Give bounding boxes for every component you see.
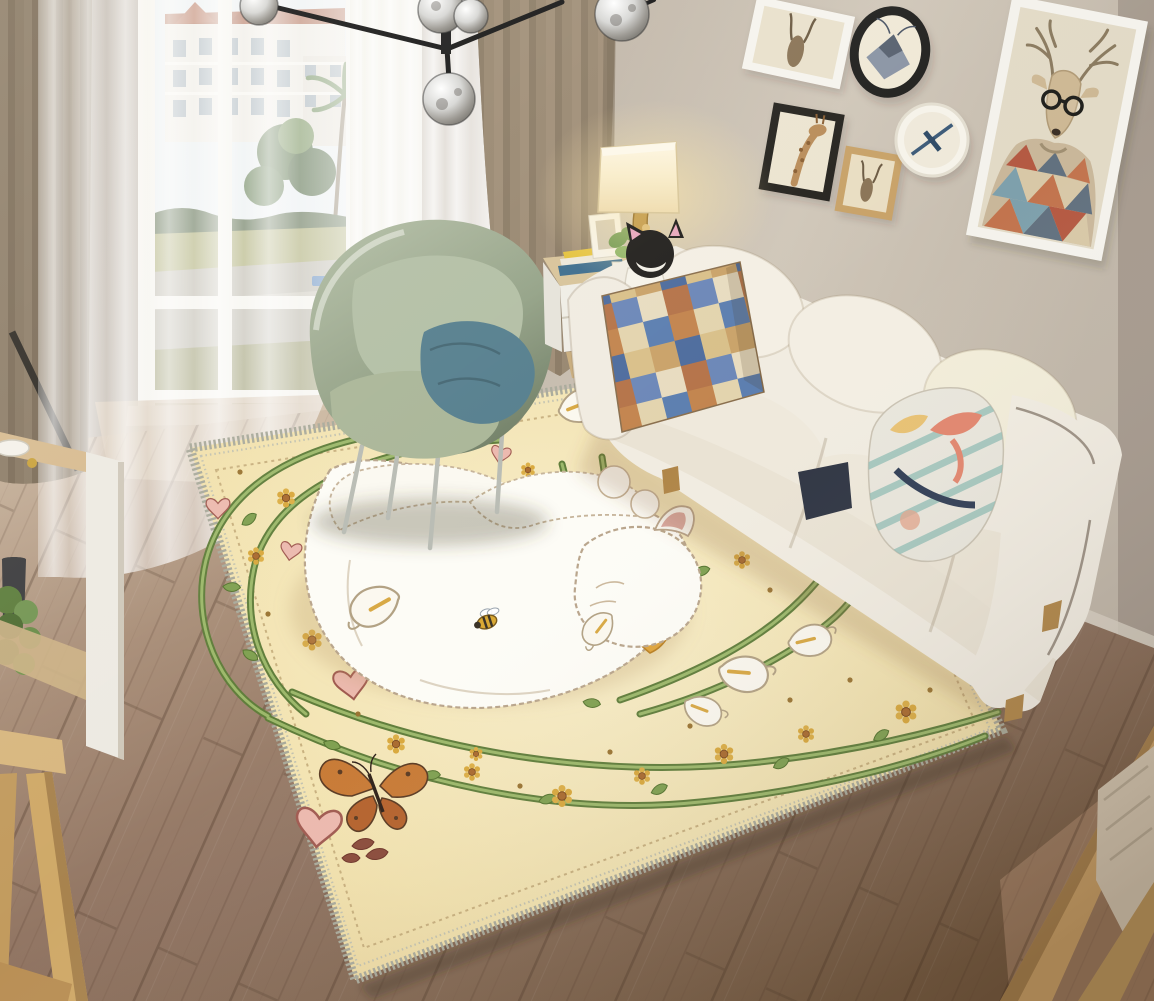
globe-bulb	[423, 73, 475, 125]
gold-ornament	[27, 458, 37, 468]
globe-bulb	[454, 0, 488, 33]
scene-canvas	[0, 0, 1154, 1001]
white-bowl	[0, 440, 29, 456]
frame-antelope-wood	[834, 146, 907, 226]
living-room-photo	[0, 0, 1154, 1001]
